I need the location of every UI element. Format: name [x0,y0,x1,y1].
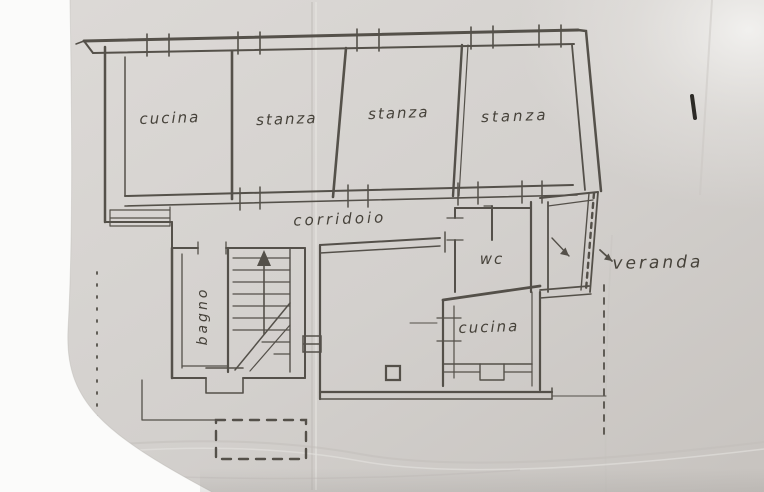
bottom-shadow [200,468,764,492]
room-label-veranda: veranda [612,252,703,274]
room-label-stanza-right: stanza [481,106,549,126]
room-label-stanza-middle: stanza [368,103,430,123]
room-label-wc: wc [480,250,505,268]
room-label-stanza-left: stanza [256,109,318,129]
room-label-cucina-lower: cucina [458,317,519,337]
floorplan-photo: cucina stanza stanza stanza corridoio wc… [0,0,764,492]
room-label-bagno: bagno [195,287,211,346]
room-label-cucina-top: cucina [139,108,200,128]
room-label-corridoio: corridoio [293,208,387,229]
floorplan-svg: cucina stanza stanza stanza corridoio wc… [0,0,764,492]
